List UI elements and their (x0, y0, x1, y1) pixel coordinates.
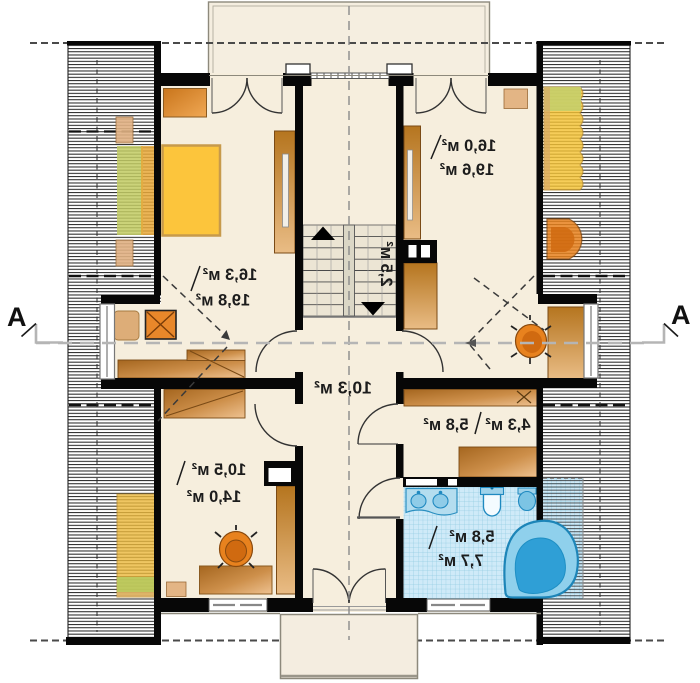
svg-text:19,6 м²: 19,6 м² (439, 161, 494, 179)
svg-text:7,7 м²: 7,7 м² (438, 552, 484, 570)
svg-text:16,0 м²: 16,0 м² (441, 137, 496, 155)
svg-text:5,8 м²: 5,8 м² (423, 416, 469, 434)
svg-text:A: A (7, 302, 27, 332)
svg-text:19,8 м²: 19,8 м² (195, 292, 250, 310)
svg-text:10,3 м²: 10,3 м² (314, 378, 372, 398)
svg-text:A: A (671, 300, 691, 330)
svg-text:16,3 м²: 16,3 м² (202, 266, 257, 284)
svg-text:2,5 м²: 2,5 м² (377, 241, 395, 287)
svg-text:5,8 м²: 5,8 м² (449, 528, 495, 546)
svg-text:4,3 м²: 4,3 м² (485, 416, 531, 434)
svg-text:14,0 м²: 14,0 м² (186, 488, 241, 506)
svg-text:10,5 м²: 10,5 м² (191, 461, 246, 479)
